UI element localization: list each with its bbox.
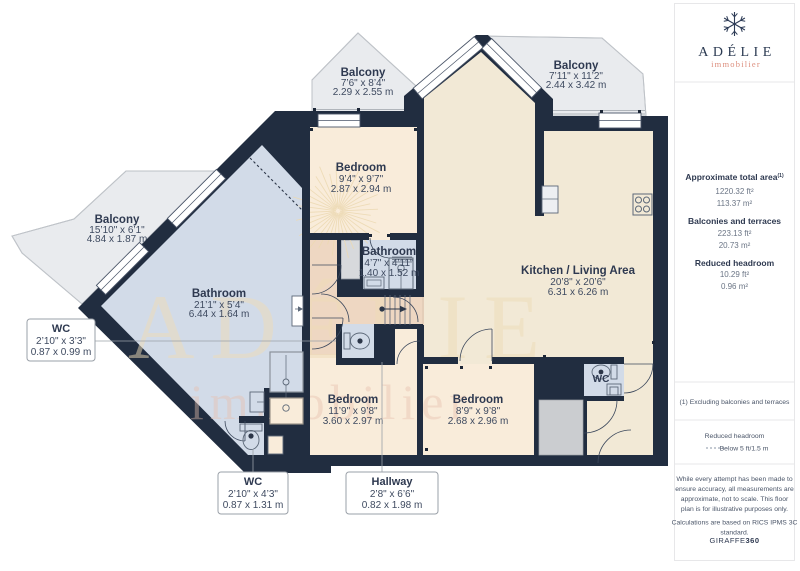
svg-text:0.82 x 1.98 m: 0.82 x 1.98 m — [362, 500, 423, 511]
svg-text:WC: WC — [52, 323, 70, 335]
svg-text:approximate, not to scale. Thi: approximate, not to scale. This floor — [681, 496, 789, 503]
svg-text:Bathroom: Bathroom — [192, 288, 246, 300]
svg-text:3.60 x 2.97 m: 3.60 x 2.97 m — [323, 416, 384, 427]
svg-text:Reduced headroom: Reduced headroom — [705, 433, 765, 440]
svg-text:ensure accuracy, all measureme: ensure accuracy, all measurements are — [675, 486, 794, 493]
svg-text:Below 5 ft/1.5 m: Below 5 ft/1.5 m — [720, 446, 769, 453]
svg-text:2.68 x 2.96 m: 2.68 x 2.96 m — [448, 416, 509, 427]
svg-text:0.96 m²: 0.96 m² — [721, 282, 748, 291]
svg-text:0.87 x 1.31 m: 0.87 x 1.31 m — [223, 500, 284, 511]
svg-text:6.44 x 1.64 m: 6.44 x 1.64 m — [189, 309, 250, 320]
svg-text:1.40 x 1.52 m: 1.40 x 1.52 m — [359, 268, 420, 279]
svg-text:Approximate total area(1): Approximate total area(1) — [685, 172, 784, 182]
svg-text:ADÉLIE: ADÉLIE — [698, 43, 776, 60]
svg-text:WC: WC — [593, 374, 610, 385]
svg-text:Calculations are based on RICS: Calculations are based on RICS IPMS 3C — [672, 520, 798, 527]
svg-text:113.37 m²: 113.37 m² — [717, 199, 753, 208]
svg-text:immobilier: immobilier — [711, 59, 761, 69]
svg-text:20.73 m²: 20.73 m² — [719, 241, 751, 250]
svg-text:Bathroom: Bathroom — [362, 246, 416, 258]
svg-text:2.29 x 2.55 m: 2.29 x 2.55 m — [333, 87, 394, 98]
svg-text:GIRAFFE360: GIRAFFE360 — [709, 536, 759, 545]
svg-text:Reduced headroom: Reduced headroom — [695, 258, 775, 268]
svg-text:2.87 x 2.94 m: 2.87 x 2.94 m — [331, 184, 392, 195]
svg-text:2’10" x 4’3": 2’10" x 4’3" — [228, 489, 278, 500]
svg-text:2’8" x 6’6": 2’8" x 6’6" — [370, 489, 415, 500]
svg-text:(1) Excluding balconies and te: (1) Excluding balconies and terraces — [680, 399, 791, 406]
svg-text:223.13 ft²: 223.13 ft² — [718, 229, 752, 238]
svg-text:Hallway: Hallway — [372, 476, 414, 488]
svg-text:plan is for illustrative purpo: plan is for illustrative purposes only. — [681, 506, 788, 513]
svg-text:2’10" x 3’3": 2’10" x 3’3" — [36, 336, 86, 347]
svg-text:1220.32 ft²: 1220.32 ft² — [715, 187, 754, 196]
svg-text:6.31 x 6.26 m: 6.31 x 6.26 m — [548, 287, 609, 298]
svg-text:Bedroom: Bedroom — [336, 162, 386, 174]
svg-text:Bedroom: Bedroom — [453, 394, 503, 406]
svg-text:Balconies and terraces: Balconies and terraces — [688, 216, 781, 226]
svg-text:Kitchen / Living Area: Kitchen / Living Area — [521, 265, 636, 277]
svg-text:Bedroom: Bedroom — [328, 394, 378, 406]
svg-text:WC: WC — [244, 476, 262, 488]
svg-text:While every attempt has been m: While every attempt has been made to — [676, 476, 793, 483]
svg-text:10.29 ft²: 10.29 ft² — [720, 270, 750, 279]
svg-text:2.44 x 3.42 m: 2.44 x 3.42 m — [546, 80, 607, 91]
svg-text:0.87 x 0.99 m: 0.87 x 0.99 m — [31, 347, 92, 358]
